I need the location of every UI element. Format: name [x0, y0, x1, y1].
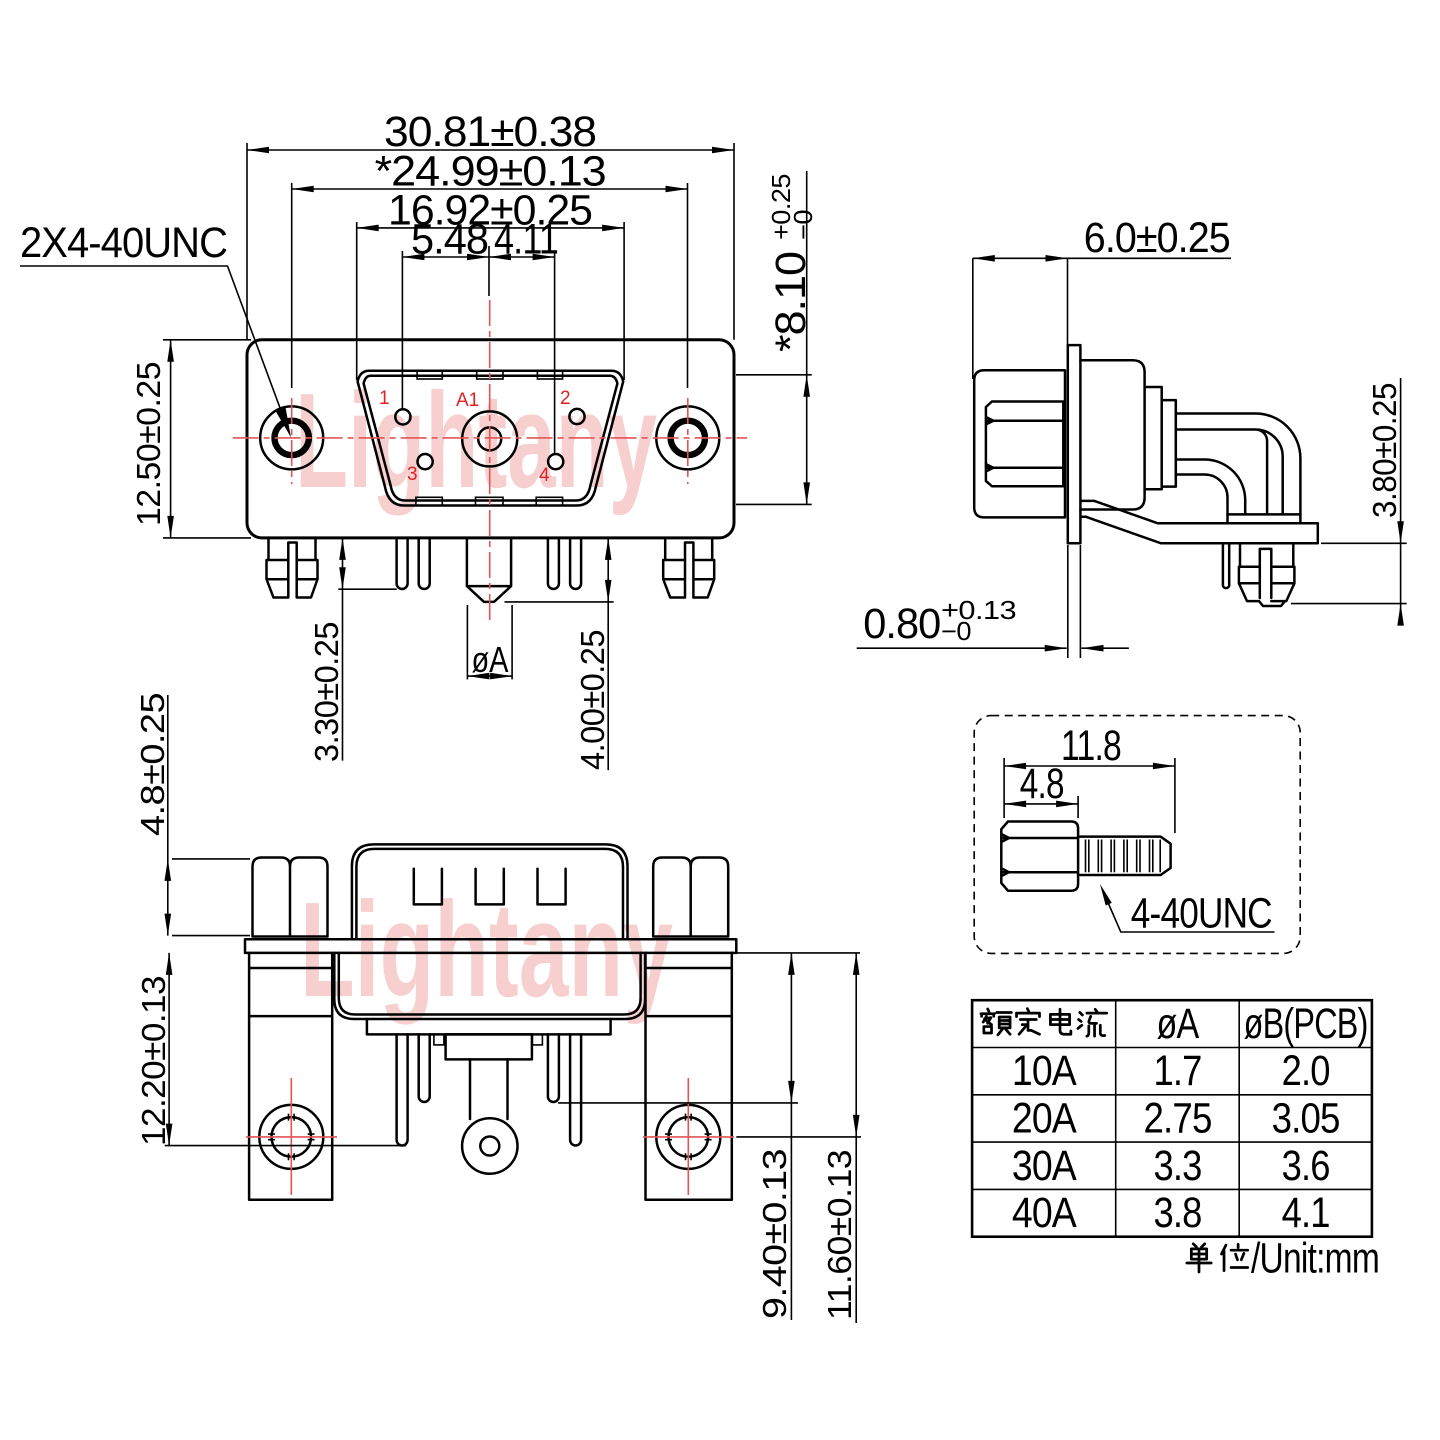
svg-text:11.60±0.13: 11.60±0.13: [821, 1150, 858, 1320]
svg-text:øA: øA: [472, 639, 509, 680]
svg-text:/Unit:mm: /Unit:mm: [1251, 1235, 1379, 1283]
svg-text:40A: 40A: [1012, 1189, 1077, 1237]
svg-text:10A: 10A: [1012, 1047, 1077, 1095]
svg-text:11.8: 11.8: [1061, 722, 1121, 770]
svg-text:4.1: 4.1: [1282, 1189, 1330, 1237]
svg-text:*8.10: *8.10: [767, 252, 815, 352]
svg-text:3.8: 3.8: [1154, 1189, 1202, 1237]
svg-text:12.50±0.25: 12.50±0.25: [130, 362, 167, 526]
svg-text:−0: −0: [941, 616, 971, 646]
svg-text:3: 3: [407, 464, 418, 485]
svg-text:2X4-40UNC: 2X4-40UNC: [20, 219, 227, 267]
svg-text:4.11: 4.11: [494, 216, 558, 264]
svg-text:4.8: 4.8: [1020, 760, 1064, 808]
svg-text:øA: øA: [1157, 1000, 1200, 1048]
svg-text:9.40±0.13: 9.40±0.13: [756, 1149, 793, 1319]
svg-text:2: 2: [560, 388, 571, 409]
svg-text:2.75: 2.75: [1144, 1095, 1212, 1143]
svg-text:−0: −0: [788, 210, 818, 240]
svg-text:øB(PCB): øB(PCB): [1244, 1000, 1368, 1048]
svg-text:3.05: 3.05: [1272, 1095, 1340, 1143]
svg-text:1.7: 1.7: [1154, 1047, 1202, 1095]
svg-text:3.30±0.25: 3.30±0.25: [308, 622, 345, 762]
svg-text:4: 4: [539, 465, 550, 486]
svg-text:0.80: 0.80: [863, 600, 940, 648]
svg-text:A1: A1: [456, 390, 479, 411]
svg-text:3.3: 3.3: [1154, 1142, 1202, 1190]
svg-text:4-40UNC: 4-40UNC: [1131, 890, 1272, 938]
svg-text:5.48: 5.48: [411, 216, 488, 264]
svg-text:1: 1: [379, 388, 390, 409]
svg-text:6.0±0.25: 6.0±0.25: [1084, 214, 1230, 262]
svg-text:4.8±0.25: 4.8±0.25: [134, 693, 171, 836]
svg-text:20A: 20A: [1012, 1095, 1077, 1143]
svg-text:2.0: 2.0: [1282, 1047, 1330, 1095]
svg-text:3.6: 3.6: [1282, 1142, 1330, 1190]
svg-text:30A: 30A: [1012, 1142, 1077, 1190]
svg-text:3.80±0.25: 3.80±0.25: [1366, 383, 1403, 518]
svg-text:4.00±0.25: 4.00±0.25: [574, 630, 611, 770]
svg-text:12.20±0.13: 12.20±0.13: [135, 976, 172, 1146]
